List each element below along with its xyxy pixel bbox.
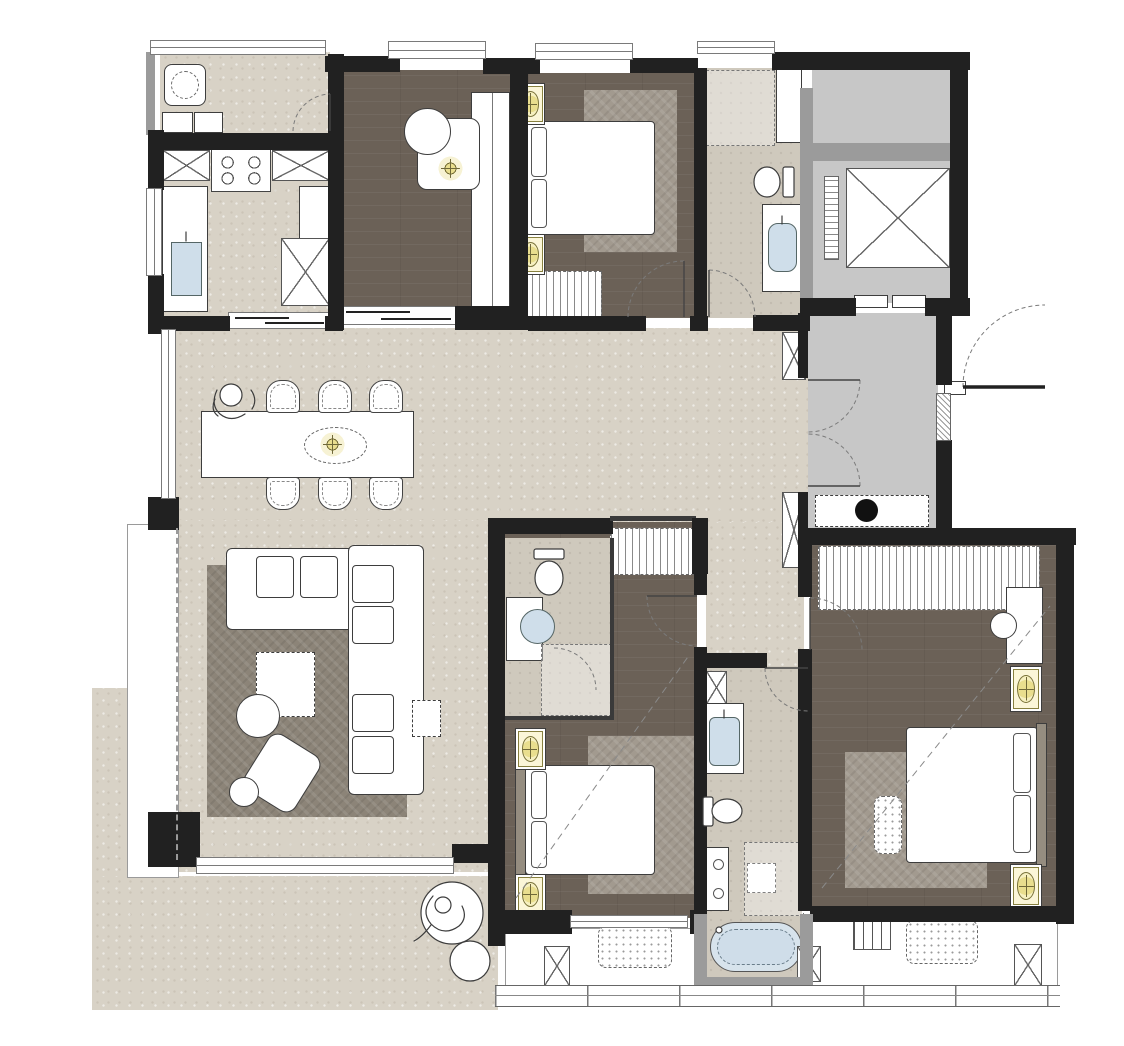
- floor-plan-canvas: [0, 0, 1124, 1046]
- wall-foyer-right-2: [936, 440, 952, 532]
- wall-study-bedroom2: [510, 70, 528, 330]
- sofa-cushion-b: [300, 556, 338, 598]
- dining-chair-3: [369, 380, 403, 413]
- wall-tub-east: [800, 914, 813, 986]
- laundry-cabinet-b: [194, 112, 223, 133]
- wall-bedroom3-south-1: [488, 910, 572, 934]
- wall-lobby-right: [950, 52, 968, 314]
- bedroom2-pillow-a: [531, 127, 547, 177]
- chaise-cushion-2: [352, 606, 394, 644]
- wall-master-right: [1056, 528, 1074, 924]
- study-chair: [404, 108, 451, 155]
- wall-bedroom3-east-1: [694, 558, 707, 595]
- bedroom3-pillow-a: [531, 771, 547, 819]
- side-table-small: [229, 777, 259, 807]
- railing-south: [495, 985, 1060, 1007]
- kitchen-upper-cabinet-a: [163, 150, 210, 181]
- master-pillow-b: [1013, 795, 1031, 853]
- wall-bedroom2-bath2: [694, 68, 707, 320]
- balcony3-mat: [598, 926, 672, 968]
- window-hatch-foyer: [936, 393, 951, 441]
- window-line-living: [176, 528, 179, 860]
- bathroom2-sink: [768, 223, 797, 272]
- master-balcony-column: [1014, 944, 1042, 986]
- master-headboard: [1036, 723, 1047, 867]
- bedroom3-lamp-a: [518, 731, 543, 767]
- dining-chair-4: [266, 477, 300, 510]
- master-lamp-a: [1013, 669, 1039, 709]
- wall-living-se: [452, 844, 500, 863]
- sofa-cushion-a: [256, 556, 294, 598]
- study-ceiling-light: [437, 155, 464, 182]
- master-lamp-b: [1013, 867, 1039, 905]
- study-sliding-door: [338, 306, 458, 325]
- wall-ensuite-south: [505, 716, 614, 720]
- sofa-side-table: [412, 700, 441, 737]
- laundry-cabinet-a: [162, 112, 193, 133]
- wall-master-west-1: [798, 545, 812, 597]
- bedroom2-pillow-b: [531, 179, 547, 228]
- wall-laundry-left: [146, 52, 155, 135]
- wall-living-sw: [148, 812, 200, 867]
- wall-master-west-2: [798, 649, 812, 911]
- kitchen-sliding-door: [228, 312, 330, 329]
- bathroom2-shelf: [776, 67, 802, 143]
- wall-top-3: [630, 58, 698, 73]
- bathroom3-shower: [744, 842, 804, 916]
- bathroom3-sink: [709, 717, 740, 766]
- wall-tub-west: [694, 914, 707, 986]
- bedroom3-lamp-b: [518, 877, 543, 912]
- chaise-cushion-4: [352, 736, 394, 774]
- balcony3-column: [544, 946, 570, 986]
- wall-closet3-north: [610, 516, 696, 521]
- master-dressing-stool: [990, 612, 1017, 639]
- wall-minihall-south: [706, 653, 767, 668]
- ensuite-shower: [541, 644, 612, 716]
- wall-lobby-foyer-1: [800, 298, 856, 316]
- wall-hall-north-2: [325, 316, 343, 331]
- wall-bedroom2-south-2: [690, 316, 708, 331]
- dining-chair-2: [318, 380, 352, 413]
- door-arc-entry: [963, 305, 1045, 387]
- elevator-door-sill-a: [854, 295, 888, 308]
- bedroom3-closet: [610, 528, 694, 575]
- washing-machine: [164, 64, 206, 106]
- wall-foyer-right-1: [936, 313, 952, 385]
- wall-lobby-top: [772, 52, 970, 70]
- wall-pier-left-b: [148, 497, 179, 530]
- wall-master-south: [810, 906, 1058, 922]
- bathroom2-shower: [701, 70, 775, 146]
- wall-kitchen-study: [328, 54, 344, 330]
- wall-hall-north-3: [455, 306, 511, 330]
- wall-bedroom3-east-2: [694, 647, 707, 917]
- window-dining-left: [161, 329, 176, 499]
- lobby-divider: [812, 143, 952, 163]
- master-balcony-mat: [906, 920, 978, 964]
- ensuite-round-sink: [520, 609, 555, 644]
- wall-foyer-west-2: [798, 492, 808, 530]
- window-bath2-top: [697, 41, 775, 54]
- bathroom3-cabinet-top: [706, 671, 727, 704]
- bathroom3-cabinet: [705, 847, 729, 911]
- wall-bath2-lobby: [800, 88, 813, 312]
- terrace-floor: [92, 876, 498, 1010]
- kitchen-counter-right: [299, 186, 330, 242]
- kitchen-upper-cabinet-b: [272, 150, 330, 181]
- master-bed-bench: [874, 796, 902, 854]
- bathtub: [710, 922, 802, 972]
- wall-bedroom2-south-1: [528, 316, 646, 331]
- wall-corridor-south: [488, 518, 613, 534]
- kitchen-island-cabinet: [281, 238, 330, 306]
- window-kitchen-left: [146, 188, 162, 276]
- window-laundry-top: [150, 40, 326, 55]
- wall-foyer-west-1: [798, 313, 808, 378]
- lobby-upper-floor: [812, 70, 952, 145]
- dining-chair-6: [369, 477, 403, 510]
- ottoman: [236, 694, 280, 738]
- chaise-cushion-3: [352, 694, 394, 732]
- wall-ensuite-east: [610, 538, 614, 720]
- dining-chair-5: [318, 477, 352, 510]
- window-living-south: [196, 857, 454, 874]
- elevator-louver: [824, 176, 839, 260]
- bedroom2-wardrobe: [517, 271, 602, 317]
- elevator-door-sill-b: [892, 295, 926, 308]
- foyer-bowl: [855, 499, 878, 522]
- wall-bedroom3-west: [488, 518, 505, 946]
- wall-foyer-south: [798, 528, 1076, 545]
- master-pillow-a: [1013, 733, 1031, 793]
- chaise-cushion-1: [352, 565, 394, 603]
- window-bedroom2-top: [535, 43, 633, 60]
- kitchen-cooktop: [211, 148, 271, 192]
- wall-laundry-divider: [150, 133, 332, 150]
- window-study-top: [388, 41, 486, 59]
- window-balcony3: [570, 915, 688, 928]
- kitchen-sink: [171, 242, 202, 296]
- dining-chair-1: [266, 380, 300, 413]
- bedroom3-pillow-b: [531, 821, 547, 868]
- elevator-cab: [846, 168, 950, 268]
- dining-pendant-light: [319, 431, 346, 458]
